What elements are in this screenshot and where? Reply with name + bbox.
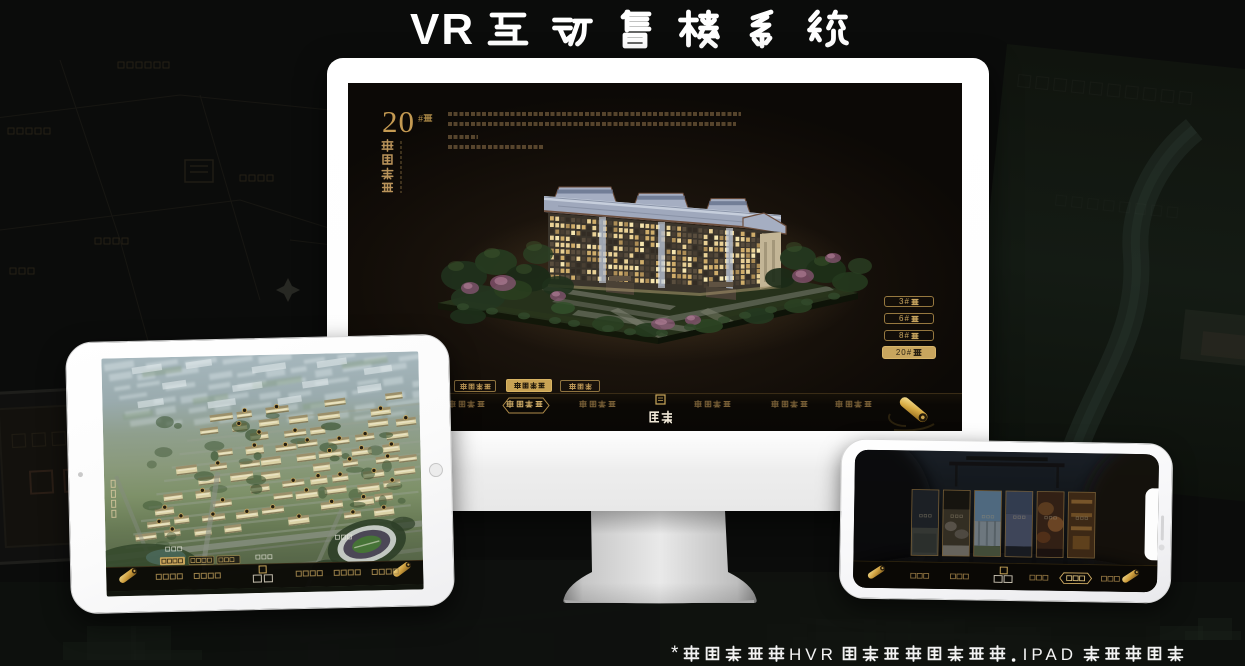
svg-text:IPAD: IPAD bbox=[1023, 645, 1077, 664]
svg-text:*: * bbox=[671, 643, 679, 664]
svg-text:VR: VR bbox=[410, 5, 475, 54]
svg-text:HVR: HVR bbox=[789, 645, 837, 664]
